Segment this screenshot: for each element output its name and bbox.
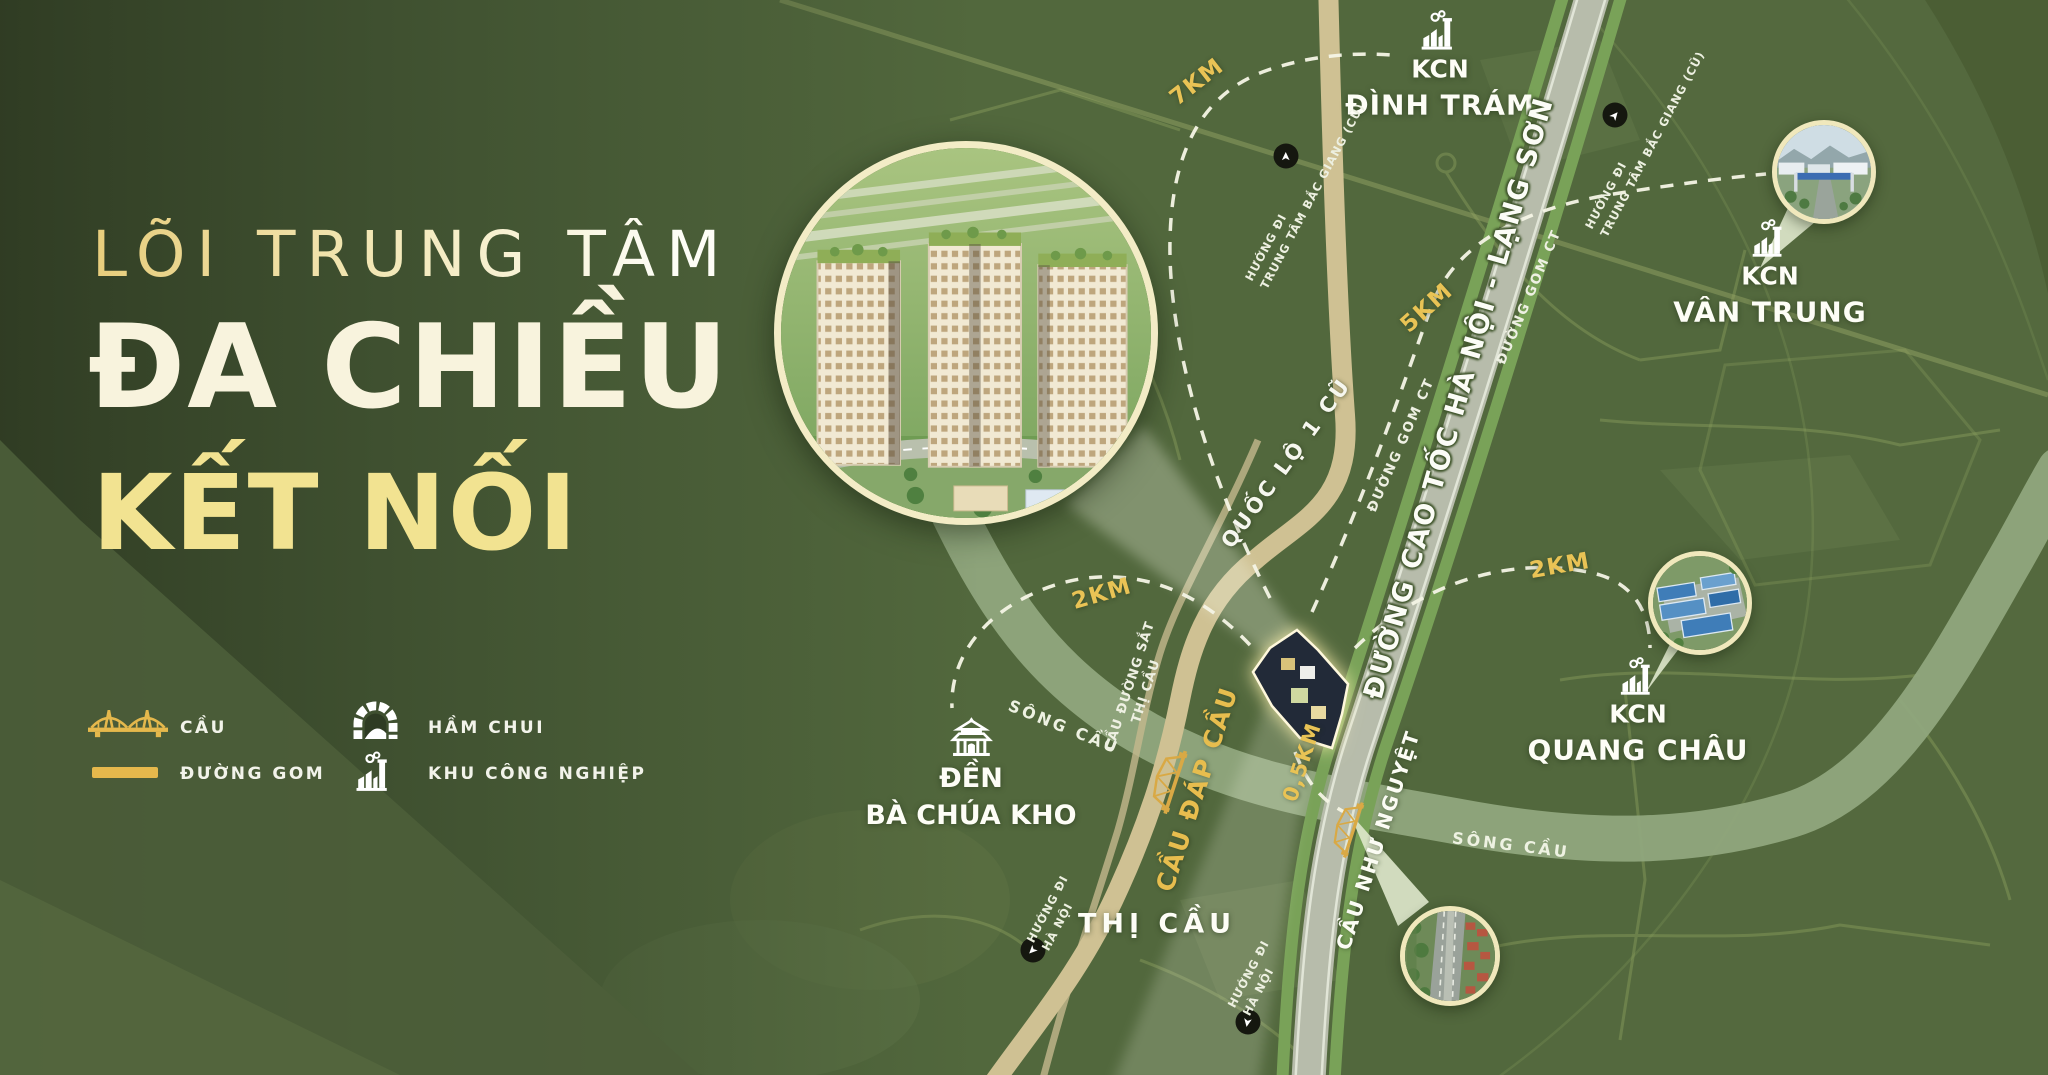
kcn-quang-chau-label-line2: QUANG CHÂU xyxy=(1527,733,1748,767)
legend-label-underpass: HẦM CHUI xyxy=(428,718,545,738)
temple-label-line1: ĐỀN xyxy=(939,763,1003,796)
temple-icon xyxy=(948,717,994,759)
poster-root: LÕI TRUNG TÂM ĐA CHIỀU KẾT NỐI CẦU ĐƯỜNG… xyxy=(0,0,2048,1075)
legend-label-frontage-road: ĐƯỜNG GOM xyxy=(180,764,325,784)
headline-line-2: ĐA CHIỀU xyxy=(88,300,730,435)
kcn-dinh-tram-label-line1: KCN xyxy=(1411,55,1469,86)
frontage-road-swatch xyxy=(92,767,158,778)
legend-label-bridge: CẦU xyxy=(180,718,227,738)
poi-kcn-quang-chau: KCN QUANG CHÂU xyxy=(1527,657,1748,768)
kcn-van-trung-label-line1: KCN xyxy=(1741,262,1799,293)
kcn-dinh-tram-label-line2: ĐÌNH TRÁM xyxy=(1345,88,1535,122)
kcn-van-trung-label-line2: VÂN TRUNG xyxy=(1673,295,1866,329)
industrial-zone-icon xyxy=(1418,10,1462,52)
headline-line-1: LÕI TRUNG TÂM xyxy=(92,218,731,291)
kcn-van-trung-photo xyxy=(1772,120,1876,224)
legend-label-industrial-zone: KHU CÔNG NGHIỆP xyxy=(428,764,646,784)
tower-c xyxy=(1038,248,1126,467)
industrial-zone-icon xyxy=(1749,219,1791,259)
direction-arrow-up-icon: ➤ xyxy=(1274,144,1299,169)
nhu-nguyet-bridge-photo xyxy=(1400,906,1500,1006)
tower-a xyxy=(817,244,900,465)
industrial-zone-icon xyxy=(1617,657,1659,697)
direction-arrow-upright-icon: ➤ xyxy=(1603,103,1628,128)
temple-label-line2: BÀ CHÚA KHO xyxy=(865,800,1076,833)
poi-den-ba-chua-kho: ĐỀN BÀ CHÚA KHO xyxy=(865,717,1076,833)
kcn-quang-chau-label-line1: KCN xyxy=(1609,700,1667,731)
tower-b xyxy=(929,227,1021,467)
project-render-photo xyxy=(774,141,1158,525)
underpass-icon xyxy=(352,700,399,741)
industrial-zone-icon xyxy=(354,751,396,793)
town-label-thi-cau: THỊ CẦU xyxy=(1078,909,1236,942)
poi-kcn-van-trung: KCN VÂN TRUNG xyxy=(1673,219,1866,330)
bridge-icon xyxy=(88,703,168,740)
kcn-quang-chau-photo xyxy=(1648,551,1752,655)
headline-line-3: KẾT NỐI xyxy=(92,452,579,574)
legend: CẦU ĐƯỜNG GOM HẦM CHUI KHU CÔNG NGHIỆP xyxy=(88,695,588,805)
poi-kcn-dinh-tram: KCN ĐÌNH TRÁM xyxy=(1345,10,1535,123)
